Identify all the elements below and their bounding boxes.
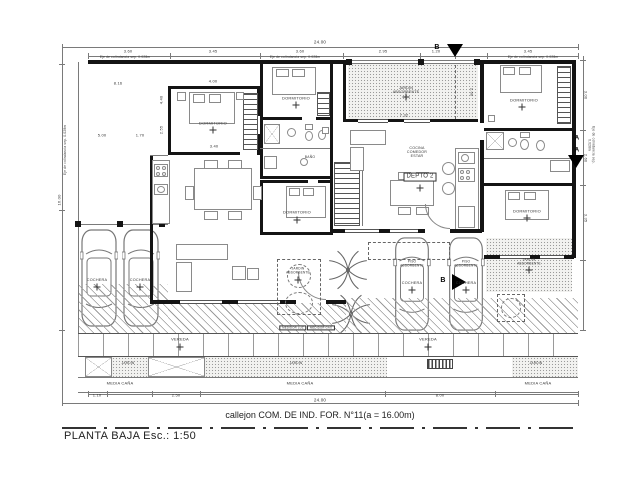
section-letter: A [575, 148, 580, 155]
strip-label: JARDIN [122, 362, 135, 366]
fridge [458, 206, 475, 228]
wall [418, 229, 425, 233]
area-label: COCHERA [87, 278, 107, 282]
wall [333, 229, 345, 233]
level-mark-icon [295, 277, 302, 284]
area-label: JARDIN ABSORBENTE [517, 258, 541, 265]
tick [59, 64, 65, 65]
level-mark-icon [524, 215, 531, 222]
wall [260, 63, 263, 120]
area-label: COCHERA [402, 281, 422, 285]
level-mark-icon [293, 102, 300, 109]
wall [260, 232, 333, 235]
thin-wall [150, 155, 168, 156]
window [180, 300, 222, 304]
dim-label: 5.00 [98, 134, 107, 139]
burner [466, 170, 470, 174]
wall [450, 229, 482, 233]
ramp [148, 357, 205, 377]
area-label: PISO ABSORBENTE [400, 260, 424, 267]
property-line [78, 62, 79, 333]
planter-ring [501, 298, 521, 318]
planter-ring [285, 292, 313, 314]
room-label: DORMITORIO [513, 210, 541, 215]
tick [487, 53, 488, 59]
wall [168, 86, 171, 155]
section-arrow [568, 155, 584, 168]
dim-label: 3.60 [296, 50, 305, 55]
room-label: BAÑO [305, 156, 315, 160]
dim-label: 3.45 [524, 50, 533, 55]
burner [162, 172, 166, 176]
dim-line [62, 47, 63, 403]
level-mark-icon [417, 185, 424, 192]
pillow [508, 192, 520, 200]
level-mark-icon [94, 284, 101, 291]
dim-label: 7.32 [400, 114, 409, 119]
pillow [292, 69, 305, 77]
area-label: COCHERA [130, 278, 150, 282]
window [540, 255, 564, 259]
pergola-line [346, 63, 478, 64]
thin-wall [260, 148, 330, 149]
dim-label: 1.10 [93, 394, 102, 399]
level-mark-icon [463, 287, 470, 294]
sink-bowl [157, 186, 165, 193]
strip-label: VEREDA [171, 338, 189, 343]
chair [253, 186, 262, 200]
tick [343, 53, 344, 59]
dim-label: 4.00 [209, 80, 218, 85]
burner [162, 166, 166, 170]
dim-label: 1.70 [136, 134, 145, 139]
thin-wall [362, 162, 363, 226]
dim-label: 16.00 [58, 194, 63, 205]
dim-label: 4.40 [160, 96, 165, 105]
tick [580, 130, 586, 131]
strip-line [78, 377, 578, 378]
wall [326, 300, 346, 304]
pillow [289, 188, 300, 196]
strip-label: MEDIA CAÑA [287, 382, 314, 387]
level-mark-icon [409, 287, 416, 294]
pillow [503, 67, 515, 75]
tick [578, 400, 579, 406]
stool [442, 162, 455, 175]
dim-label: 2.60 [583, 154, 588, 163]
wall [260, 120, 263, 178]
strip-label: MEDIA CAÑA [107, 382, 134, 387]
side-table [232, 266, 246, 280]
dim-label: 2.60 [469, 88, 474, 97]
level-mark-icon [425, 344, 432, 351]
section-letter: A [575, 136, 580, 143]
meter-label: MEDIDOR LUZ [279, 325, 306, 330]
chair [204, 211, 218, 220]
carport-line [78, 224, 168, 225]
unit-label: DEPTO 2 [404, 173, 437, 182]
window [238, 300, 280, 304]
tick [580, 185, 586, 186]
level-mark-icon [137, 284, 144, 291]
wall [343, 63, 346, 122]
meter-label: MEDIDOR GAS [307, 325, 335, 330]
window [358, 119, 388, 123]
boundary-note: Eje de colindancia sep. 0.028m [508, 56, 558, 60]
toilet [305, 131, 313, 141]
dim-label: 3.45 [209, 50, 218, 55]
wall [260, 117, 302, 120]
stipple-strip [205, 357, 387, 377]
dim-label: 2.55 [160, 126, 165, 135]
room-label: COCINA COMEDOR ESTAR [407, 146, 427, 158]
tick [580, 260, 586, 261]
sofa [350, 130, 386, 145]
dim-label: 8.16 [114, 82, 123, 87]
boundary-note: Eje de colindancia sep. 0.028m [270, 56, 320, 60]
shower [264, 124, 280, 144]
dim-label: 3.00 [583, 91, 588, 100]
dim-line [88, 56, 578, 57]
bidet [536, 140, 545, 151]
wardrobe [557, 66, 571, 124]
toilet-tank [520, 132, 530, 138]
area-label: COCHERA [456, 281, 476, 285]
post [346, 59, 352, 65]
tick [260, 53, 261, 59]
wardrobe [317, 92, 330, 116]
dashed-zone [368, 242, 450, 260]
pillow [524, 192, 536, 200]
section-dash [455, 65, 456, 119]
tv [247, 268, 259, 280]
wall [222, 300, 238, 304]
shower [486, 132, 504, 150]
wall [484, 183, 572, 186]
toilet-tank [305, 124, 313, 130]
stipple-strip [112, 357, 148, 377]
section-arrow [447, 44, 463, 57]
tick [59, 210, 65, 211]
wall [480, 140, 484, 232]
wall [168, 152, 240, 155]
pergola-line [346, 60, 478, 61]
pillow [193, 94, 205, 103]
sink-bowl [461, 154, 469, 162]
dim-line [62, 403, 578, 404]
pillow [303, 188, 314, 196]
section-letter: B [440, 277, 445, 285]
floorplan-sheet: { "title": "PLANTA BAJA Esc.: 1:50", "st… [0, 0, 640, 480]
window [404, 119, 430, 123]
tick [578, 53, 579, 59]
sink [287, 128, 296, 137]
chair [398, 207, 411, 215]
dim-label: 2.50 [172, 394, 181, 399]
stipple-strip [512, 357, 578, 377]
level-mark-icon [403, 94, 410, 101]
tick [578, 391, 579, 397]
level-mark-icon [210, 127, 217, 134]
pillow [519, 67, 531, 75]
dim-label: 2.95 [379, 50, 388, 55]
tick [170, 53, 171, 59]
elec-box [322, 127, 329, 134]
vereda-strip [78, 333, 578, 357]
dim-label: 3.35 [583, 214, 588, 223]
wall [330, 160, 333, 232]
area-label: JARDIN ABSORBENTE [286, 267, 310, 274]
burner [460, 176, 464, 180]
strip-line [78, 392, 578, 393]
sofa [176, 262, 192, 292]
wall [150, 300, 180, 304]
dim-total-bottom: 24.00 [314, 397, 326, 402]
burner [460, 170, 464, 174]
post [418, 59, 424, 65]
wall [484, 128, 572, 131]
dining-table [390, 180, 434, 206]
dim-label: 3.60 [124, 50, 133, 55]
area-label: JARDIN ABSORBENTE [393, 86, 420, 94]
nightstand [236, 92, 244, 100]
ramp [85, 357, 112, 377]
room-label: DORMITORIO [283, 211, 311, 216]
pillow [276, 69, 289, 77]
pillow [209, 94, 221, 103]
chair [204, 160, 218, 169]
sink [508, 138, 517, 147]
post [117, 221, 123, 227]
sofa [176, 244, 228, 260]
grate [427, 359, 453, 369]
tick [578, 44, 579, 50]
chair [185, 186, 194, 200]
wall [168, 86, 260, 89]
washer [264, 156, 277, 169]
strip-label: JARDIN [530, 362, 543, 366]
chair [228, 211, 242, 220]
strip-label: JARDIN [290, 362, 303, 366]
window [345, 229, 379, 233]
tub [550, 160, 570, 172]
dim-label: 3.40 [210, 145, 219, 150]
palm-tree-icon [329, 251, 367, 289]
dining-table [194, 168, 252, 210]
stairs [243, 93, 258, 150]
room-label: DORMITORIO [510, 99, 538, 104]
room-label: DORMITORIO [199, 122, 227, 127]
dim-line [62, 47, 578, 48]
hatch-paving [78, 284, 168, 333]
wall [478, 60, 576, 64]
area-label: PISO ABSORBENTE [454, 260, 478, 267]
wall [88, 60, 346, 64]
boundary-note: Eje de colindancia sep. 0.028m [64, 125, 68, 175]
wall [316, 117, 333, 120]
chair [228, 160, 242, 169]
level-mark-icon [519, 104, 526, 111]
tick [88, 53, 89, 59]
nightstand [177, 92, 186, 101]
boundary-note: Eje de colindancia sep. 0.028m [100, 56, 150, 60]
post [75, 221, 81, 227]
wall [379, 229, 390, 233]
section-letter: B [434, 44, 439, 52]
room-label: DORMITORIO [282, 97, 310, 102]
dim-line [88, 394, 578, 395]
wall [480, 63, 484, 123]
tick [59, 330, 65, 331]
hatch-paving [346, 298, 578, 333]
level-mark-icon [526, 267, 533, 274]
dim-total-top: 24.00 [314, 39, 326, 44]
dim-label: 8.00 [436, 394, 445, 399]
tick [580, 60, 586, 61]
wall [260, 180, 308, 183]
window [390, 229, 418, 233]
boundary-note: Eje de colindancia sep. 0.028m [587, 121, 594, 170]
wall [260, 176, 333, 179]
burner [156, 166, 160, 170]
stairs [334, 162, 360, 226]
thin-wall [484, 158, 572, 159]
burner [156, 172, 160, 176]
elec-box [488, 115, 495, 122]
burner [466, 176, 470, 180]
level-mark-icon [294, 217, 301, 224]
strip-label: MEDIA CAÑA [525, 382, 552, 387]
toilet [520, 139, 529, 150]
stool [442, 182, 455, 195]
tick [580, 330, 586, 331]
strip-label: VEREDA [419, 338, 437, 343]
level-mark-icon [177, 344, 184, 351]
tick [62, 400, 63, 406]
sofa [350, 147, 364, 171]
